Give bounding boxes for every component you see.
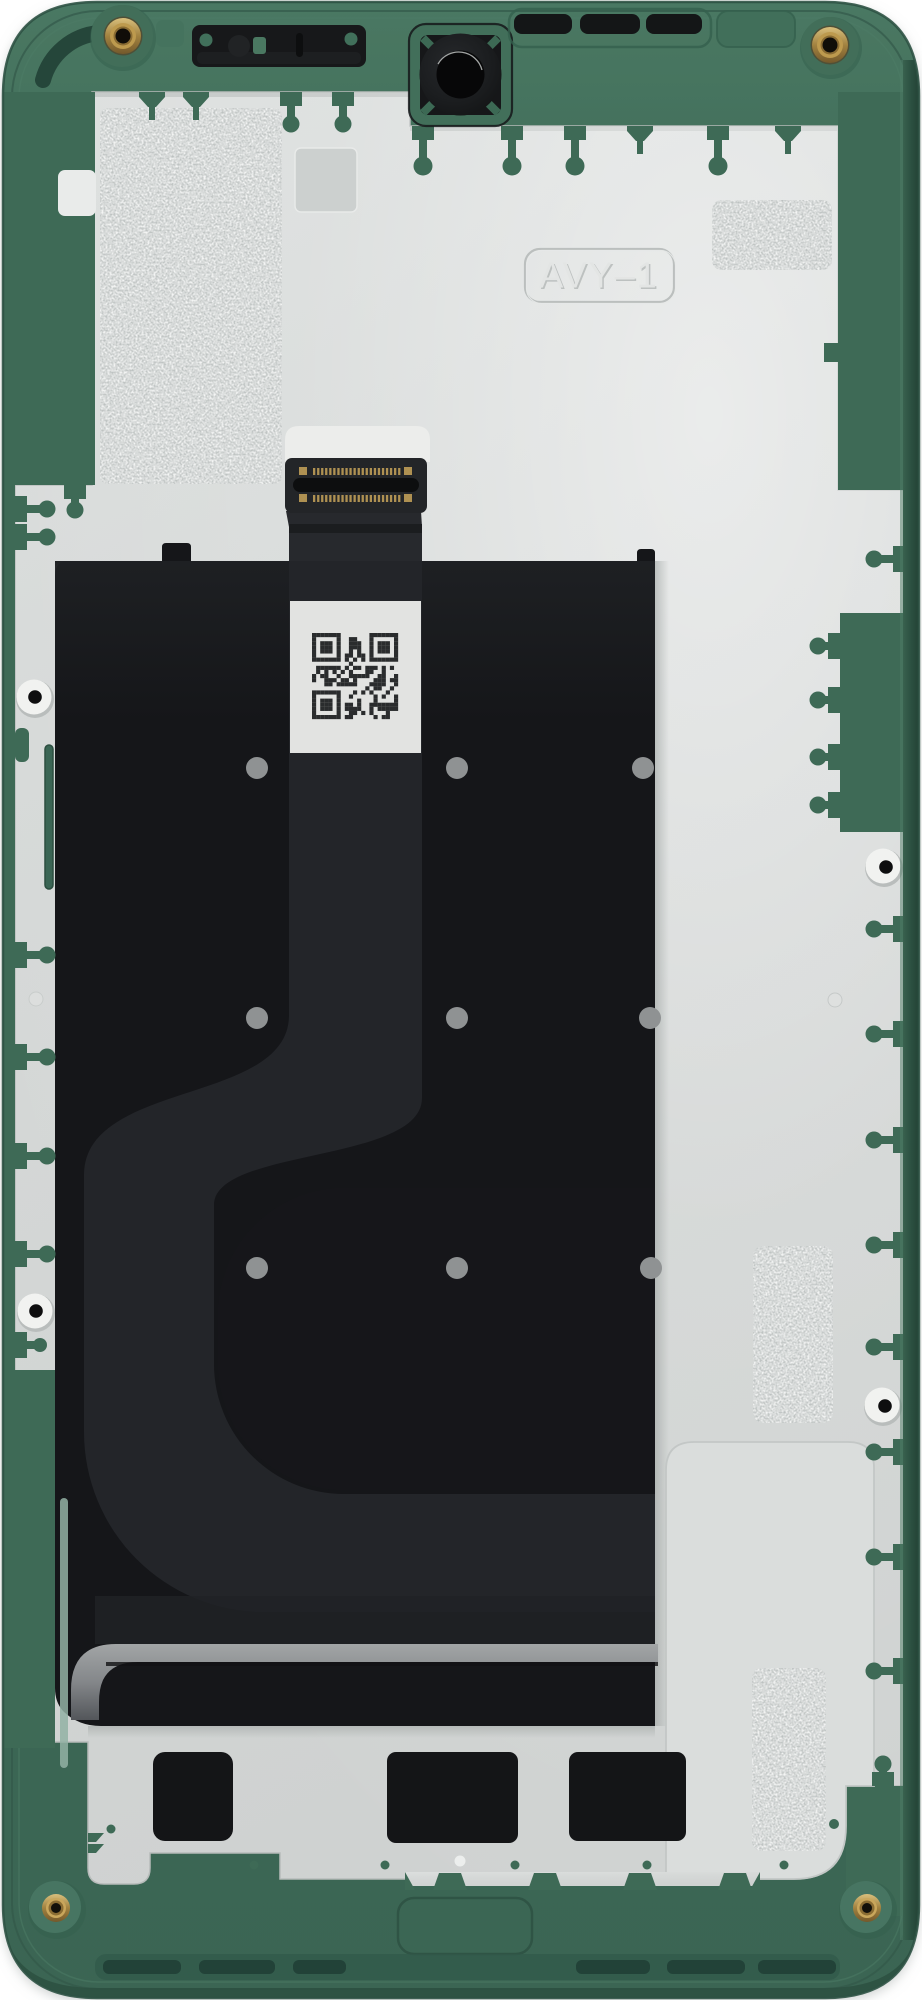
svg-text:AVY–1: AVY–1 — [539, 255, 658, 296]
